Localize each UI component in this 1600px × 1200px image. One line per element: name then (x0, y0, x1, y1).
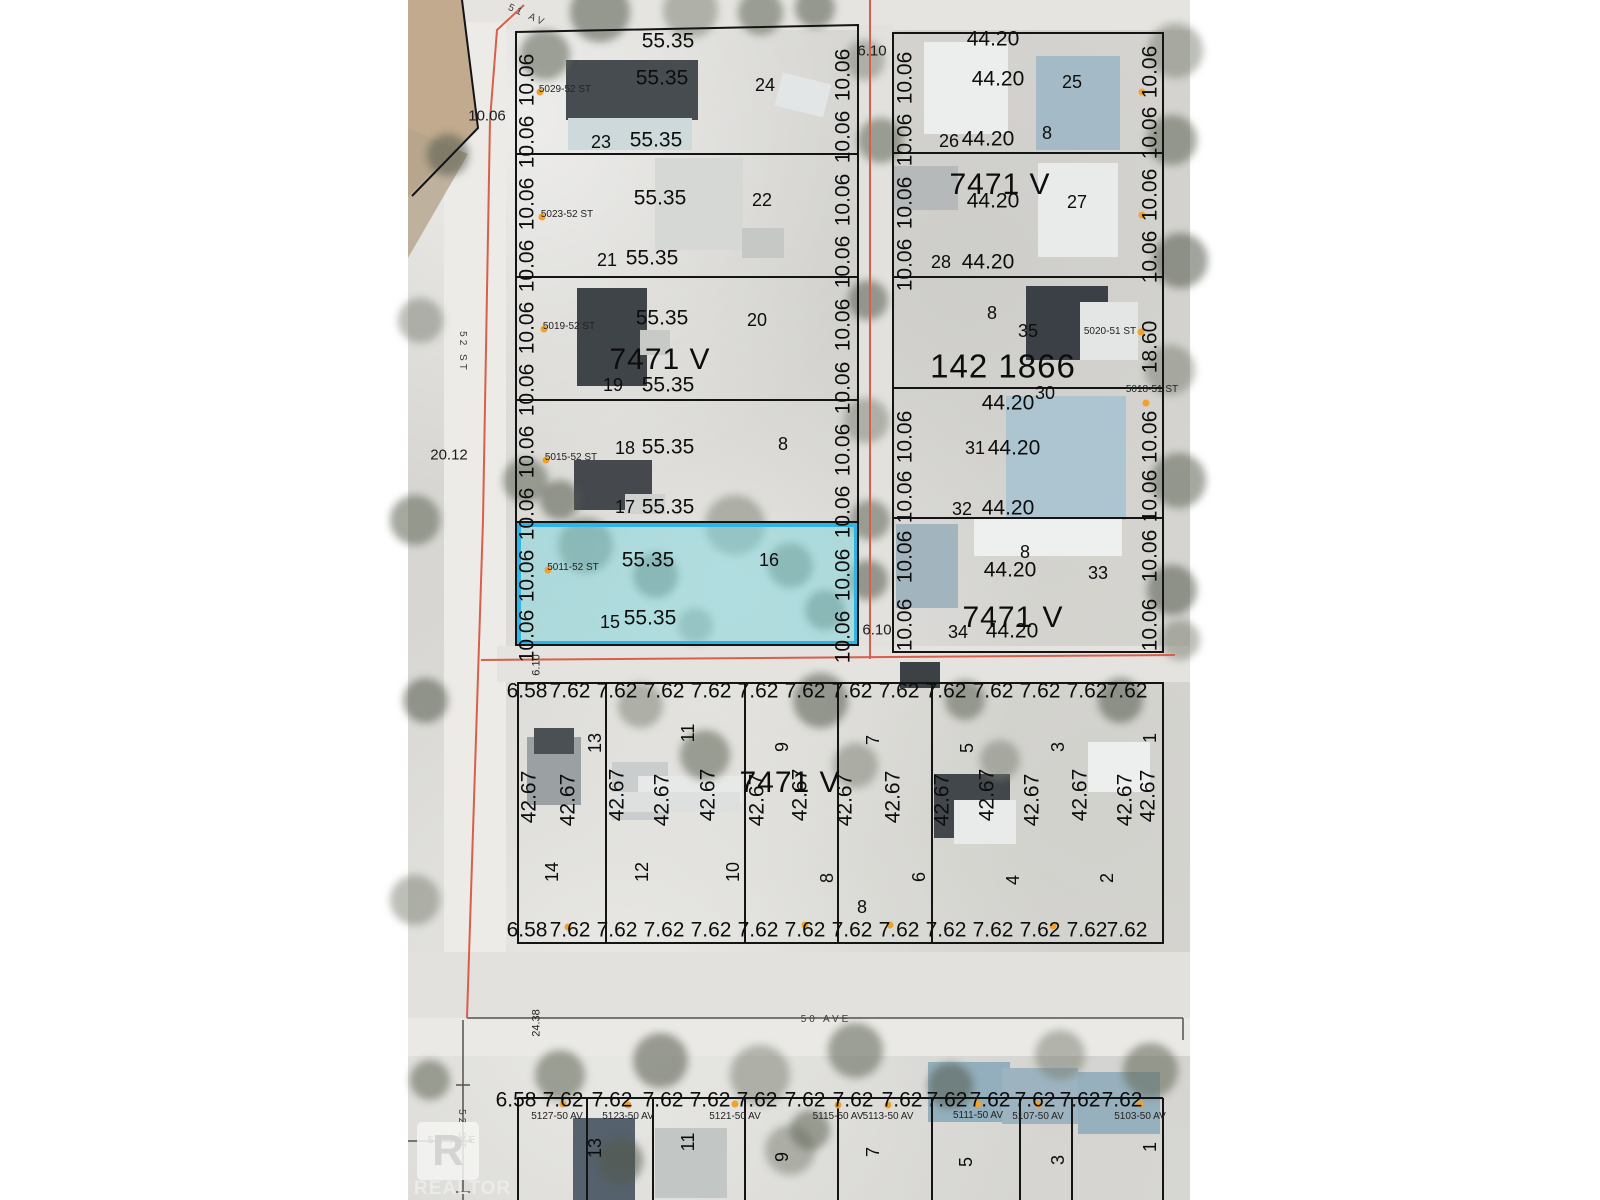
dimension-label: 7.62 (738, 920, 779, 941)
dimension-label: 10.06 (833, 549, 854, 602)
dimension-label: 10.06 (895, 52, 916, 105)
lot-number: 7 (864, 735, 882, 745)
address-label: 5023-52 ST (541, 210, 593, 220)
dimension-label: 6.10 (862, 623, 891, 638)
dimension-label: 10.06 (468, 109, 506, 124)
lot-number: 17 (615, 498, 635, 516)
dimension-label: 10.06 (833, 611, 854, 664)
dimension-label: 10.06 (517, 54, 538, 107)
dimension-label: 7.62 (592, 1090, 633, 1111)
dimension-label: 7.62 (691, 920, 732, 941)
dimension-label: 10.06 (517, 178, 538, 231)
dimension-label: 6.58 (496, 1090, 537, 1111)
dimension-label: 7.62 (926, 681, 967, 702)
dimension-label: 55.35 (624, 608, 677, 629)
address-marker-dot (1143, 400, 1150, 407)
dimension-label: 7.62 (644, 920, 685, 941)
dimension-label: 6.58 (507, 681, 548, 702)
lot-number: 13 (586, 1138, 604, 1158)
dimension-label: 10.06 (517, 364, 538, 417)
dimension-label: 55.35 (642, 31, 695, 52)
dimension-label: 55.35 (622, 550, 675, 571)
dimension-label: 7.62 (644, 681, 685, 702)
lot-number: 3 (1049, 1155, 1067, 1165)
lot-number: 9 (773, 742, 791, 752)
lot-number: 32 (952, 500, 972, 518)
address-label: 5107-50 AV (1012, 1112, 1064, 1122)
dimension-label: 55.35 (630, 130, 683, 151)
lot-number: 5 (958, 743, 976, 753)
dimension-label: 10.06 (1140, 107, 1161, 160)
dimension-label: 44.20 (982, 498, 1035, 519)
dimension-label: 55.35 (636, 308, 689, 329)
dimension-label: 10.06 (833, 49, 854, 102)
lot-number: 7 (864, 1147, 882, 1157)
lot-number: 25 (1062, 73, 1082, 91)
dimension-label: 7.62 (973, 681, 1014, 702)
dimension-label: 42.67 (932, 774, 953, 827)
lot-number: 8 (857, 898, 867, 916)
dimension-label: 44.20 (984, 560, 1037, 581)
dimension-label: 10.06 (1140, 470, 1161, 523)
dimension-label: 7.62 (879, 920, 920, 941)
plan-number-label: 142 1866 (930, 350, 1076, 383)
dimension-label: 7.62 (691, 681, 732, 702)
dimension-label: 42.67 (1115, 774, 1136, 827)
realtor-logo-letter: R (432, 1129, 464, 1173)
dimension-label: 55.35 (642, 437, 695, 458)
address-label: 5115-50 AV (813, 1112, 864, 1122)
lot-number: 1 (1141, 1142, 1159, 1152)
dimension-label: 42.67 (652, 774, 673, 827)
lot-number: 1 (1141, 733, 1159, 743)
dimension-label: 7.62 (1020, 681, 1061, 702)
dimension-label: 10.06 (517, 302, 538, 355)
dimension-label: 7.62 (1060, 1090, 1101, 1111)
dimension-label: 7.62 (1020, 920, 1061, 941)
lot-number: 10 (724, 862, 742, 882)
dimension-label: 10.06 (1140, 530, 1161, 583)
dimension-label: 10.06 (895, 177, 916, 230)
lot-number: 30 (1035, 384, 1055, 402)
dimension-label: 42.67 (519, 771, 540, 824)
dimension-label: 7.62 (785, 1090, 826, 1111)
plan-number-label: 7471 V (949, 170, 1050, 200)
lot-number: 6 (910, 872, 928, 882)
address-label: 5121-50 AV (709, 1112, 761, 1122)
survey-line-lane (481, 655, 1175, 660)
dimension-label: 10.06 (833, 424, 854, 477)
dimension-label: 7.62 (597, 681, 638, 702)
lot-number: 35 (1018, 322, 1038, 340)
dimension-label: 7.62 (926, 920, 967, 941)
dimension-label: 24.38 (532, 1009, 543, 1037)
dimension-label: 7.62 (550, 920, 591, 941)
lot-number: 23 (591, 133, 611, 151)
plat-map: 55.3555.3555.3555.3555.3555.3555.3555.35… (0, 0, 1600, 1200)
dimension-label: 7.62 (832, 920, 873, 941)
dimension-label: 42.67 (1070, 769, 1091, 822)
dimension-label: 7.62 (690, 1090, 731, 1111)
dimension-label: 10.06 (895, 599, 916, 652)
dimension-label: 10.06 (833, 174, 854, 227)
lot-number: 5 (957, 1157, 975, 1167)
lot-number: 24 (755, 76, 775, 94)
dimension-label: 10.06 (1140, 169, 1161, 222)
lot-number: 4 (1004, 875, 1022, 885)
dimension-label: 7.62 (1102, 1090, 1143, 1111)
address-label: 5020-51 ST (1084, 327, 1136, 337)
address-label: 5123-50 AV (602, 1112, 654, 1122)
dimension-label: 10.06 (833, 236, 854, 289)
dimension-label: 10.06 (1140, 231, 1161, 284)
dimension-label: 7.62 (970, 1090, 1011, 1111)
dimension-label: 55.35 (642, 497, 695, 518)
dimension-label: 7.62 (738, 681, 779, 702)
lot-number: 21 (597, 251, 617, 269)
address-label: 5018-51 ST (1126, 385, 1178, 395)
dimension-label: 7.62 (1107, 920, 1148, 941)
dimension-label: 55.35 (642, 375, 695, 396)
lot-number: 8 (987, 304, 997, 322)
dimension-label: 42.67 (883, 771, 904, 824)
lot-number: 27 (1067, 193, 1087, 211)
street-name-label: 52 ST (457, 331, 467, 373)
address-label: 5019-52 ST (543, 322, 595, 332)
address-label: 5015-52 ST (545, 453, 597, 463)
dimension-label: 7.62 (550, 681, 591, 702)
lot-number: 26 (939, 132, 959, 150)
lot-number: 9 (773, 1152, 791, 1162)
dimension-label: 7.62 (973, 920, 1014, 941)
dimension-label: 7.62 (882, 1090, 923, 1111)
dimension-label: 7.62 (543, 1090, 584, 1111)
dimension-label: 10.06 (895, 114, 916, 167)
dimension-label: 10.06 (1140, 411, 1161, 464)
dimension-label: 7.62 (597, 920, 638, 941)
lot-number: 15 (600, 613, 620, 631)
dimension-label: 42.67 (698, 769, 719, 822)
dimension-label: 44.20 (962, 252, 1015, 273)
dimension-label: 42.67 (607, 769, 628, 822)
dimension-label: 10.06 (517, 488, 538, 541)
realtor-logo: R (417, 1122, 479, 1180)
address-label: 5029-52 ST (539, 85, 591, 95)
dimension-label: 6.10 (532, 654, 543, 675)
lot-number: 28 (931, 253, 951, 271)
lot-number: 19 (603, 376, 623, 394)
lot-number: 3 (1049, 742, 1067, 752)
lot-number: 8 (1020, 543, 1030, 561)
address-label: 5011-52 ST (547, 563, 599, 573)
dimension-label: 10.06 (517, 426, 538, 479)
dimension-label: 44.20 (988, 438, 1041, 459)
dimension-label: 10.06 (833, 486, 854, 539)
dimension-label: 10.06 (833, 111, 854, 164)
plan-number-label: 7471 V (962, 603, 1063, 633)
dimension-label: 55.35 (626, 248, 679, 269)
dimension-label: 10.06 (895, 239, 916, 292)
dimension-label: 7.62 (833, 1090, 874, 1111)
dimension-label: 42.67 (558, 774, 579, 827)
dimension-label: 44.20 (962, 129, 1015, 150)
dimension-label: 10.06 (833, 299, 854, 352)
lot-number: 33 (1088, 564, 1108, 582)
address-label: 5127-50 AV (531, 1112, 583, 1122)
dimension-label: 42.67 (977, 769, 998, 822)
dimension-label: 10.06 (1140, 599, 1161, 652)
dimension-label: 7.62 (927, 1090, 968, 1111)
dimension-label: 42.67 (1138, 770, 1159, 823)
lot-number: 22 (752, 191, 772, 209)
lot-number: 11 (679, 1133, 697, 1152)
lot-number: 8 (1042, 124, 1052, 142)
dimension-label: 44.20 (982, 393, 1035, 414)
lot-number: 31 (965, 439, 985, 457)
address-label: 5103-50 AV (1114, 1112, 1166, 1122)
lot-number: 18 (615, 439, 635, 457)
lot-number: 20 (747, 311, 767, 329)
dimension-label: 7.62 (785, 920, 826, 941)
dimension-label: 7.62 (879, 681, 920, 702)
plan-number-label: 7471 V (609, 345, 710, 375)
dimension-label: 6.58 (507, 920, 548, 941)
dimension-label: 44.20 (967, 29, 1020, 50)
lot-number: 16 (759, 551, 779, 569)
dimension-label: 6.10 (857, 44, 886, 59)
plan-number-label: 7471 V (739, 768, 840, 798)
dimension-label: 42.67 (1022, 774, 1043, 827)
dimension-label: 7.62 (1107, 681, 1148, 702)
dimension-label: 10.06 (833, 362, 854, 415)
dimension-label: 7.62 (1067, 681, 1108, 702)
dimension-label: 20.12 (430, 448, 468, 463)
lot-number: 12 (633, 862, 651, 882)
lot-number: 8 (818, 873, 836, 883)
dimension-label: 55.35 (636, 68, 689, 89)
dimension-label: 10.06 (517, 550, 538, 603)
address-label: 5113-50 AV (863, 1112, 914, 1122)
lot-number: 14 (543, 862, 561, 882)
dimension-label: 18.60 (1140, 321, 1161, 374)
lot-number: 8 (778, 435, 788, 453)
dimension-label: 7.62 (1015, 1090, 1056, 1111)
street-name-label: 50 AVE (801, 1015, 852, 1025)
dimension-label: 10.06 (517, 116, 538, 169)
dimension-label: 10.06 (517, 240, 538, 293)
dimension-label: 7.62 (785, 681, 826, 702)
dimension-label: 7.62 (643, 1090, 684, 1111)
lot-number: 2 (1098, 873, 1116, 883)
dimension-label: 10.06 (1140, 46, 1161, 99)
dimension-label: 10.06 (895, 471, 916, 524)
block-a-outline (516, 25, 858, 645)
lot-number: 13 (586, 733, 604, 753)
dimension-label: 55.35 (634, 188, 687, 209)
realtor-wordmark: REALTOR (414, 1178, 510, 1200)
lot-number: 11 (679, 724, 697, 743)
dimension-label: 44.20 (972, 69, 1025, 90)
dimension-label: 7.62 (832, 681, 873, 702)
dimension-label: 7.62 (1067, 920, 1108, 941)
field-boundary-lines (412, 0, 478, 196)
dimension-label: 7.62 (737, 1090, 778, 1111)
address-label: 5111-50 AV (953, 1111, 1003, 1121)
dimension-label: 10.06 (895, 411, 916, 464)
dimension-label: 10.06 (895, 531, 916, 584)
